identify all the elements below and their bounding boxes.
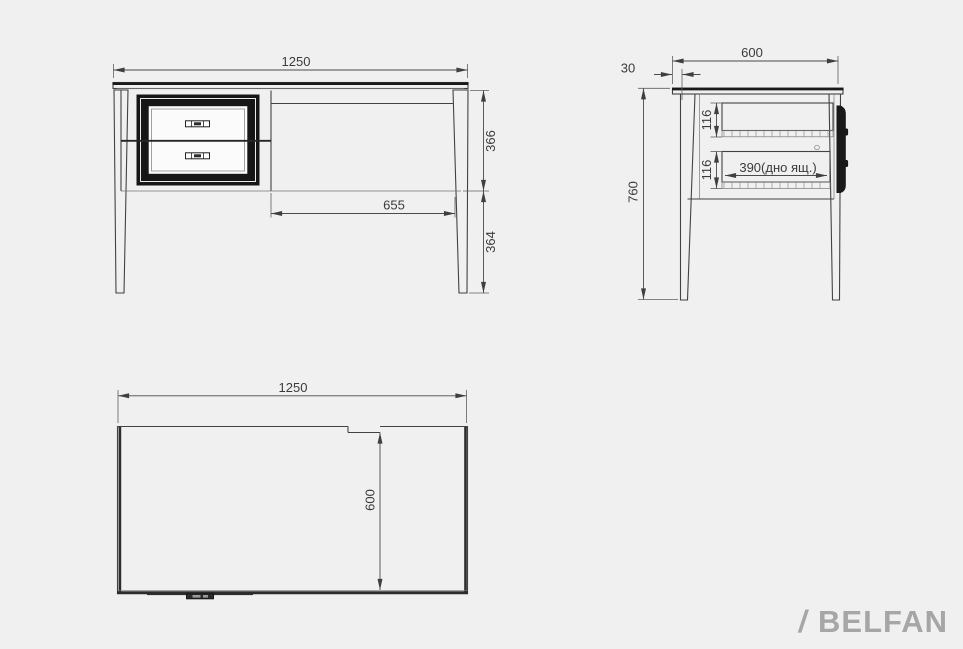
side-upper-drawer bbox=[722, 103, 833, 131]
dim-top-depth: 600 bbox=[363, 489, 378, 511]
dim-front-carcass-height: 366 bbox=[483, 130, 498, 152]
brand-logo: / BELFAN bbox=[799, 606, 948, 637]
dim-side-drawer-bottom: 390(дно ящ.) bbox=[739, 160, 816, 175]
drawer-handle-top bbox=[186, 121, 210, 127]
handle-profile-top bbox=[845, 129, 849, 136]
dim-side-height: 760 bbox=[626, 181, 641, 203]
dim-front-kneehole-width: 655 bbox=[383, 198, 405, 213]
dim-top-width: 1250 bbox=[279, 380, 308, 395]
top-view: 1250 600 bbox=[117, 380, 468, 599]
logo-slash-icon: / bbox=[797, 606, 811, 637]
drawing-canvas: 1250 366 364 655 bbox=[0, 0, 963, 649]
front-view: 1250 366 364 655 bbox=[113, 54, 499, 293]
dim-front-leg-height: 364 bbox=[483, 231, 498, 253]
dim-side-depth: 600 bbox=[741, 45, 763, 60]
handle-profile-bottom bbox=[845, 160, 849, 167]
side-leg-front bbox=[681, 94, 696, 300]
dim-side-lower-drawer-height: 116 bbox=[699, 160, 714, 181]
dim-side-upper-drawer-height: 116 bbox=[699, 110, 714, 131]
side-view: 600 30 760 116 116 390(дно ящ.) bbox=[621, 45, 848, 300]
front-leg-right bbox=[453, 90, 468, 293]
dim-front-overall-width: 1250 bbox=[282, 54, 311, 69]
drawer-handle-bottom bbox=[186, 153, 210, 159]
drawer-front-profile bbox=[837, 106, 846, 194]
dim-side-overhang: 30 bbox=[621, 61, 635, 76]
technical-drawing-page: 1250 366 364 655 bbox=[0, 0, 963, 649]
logo-text: BELFAN bbox=[818, 606, 948, 637]
screw-hole bbox=[815, 145, 820, 150]
